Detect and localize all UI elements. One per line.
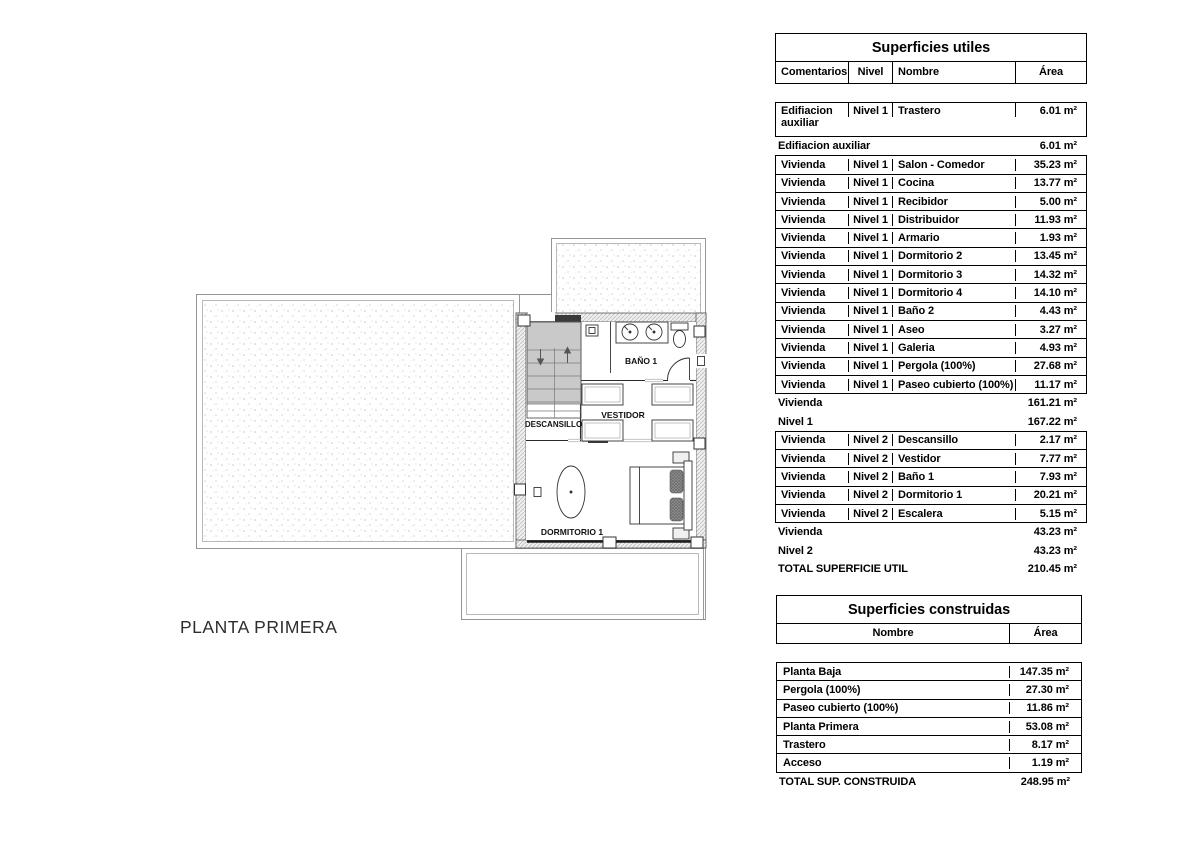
- table-cell: Trastero: [892, 103, 1015, 117]
- table-row: ViviendaNivel 1Recibidor5.00 m²: [775, 192, 1087, 211]
- table-header: Superficies utiles Comentarios Nivel Nom…: [775, 33, 1087, 84]
- table-cell: Nivel 1: [848, 177, 892, 189]
- table-cell: Dormitorio 1: [892, 489, 1015, 501]
- table-row: Planta Primera53.08 m²: [776, 717, 1082, 736]
- table-cell: Vivienda: [776, 342, 848, 354]
- table-cell: 14.10 m²: [1015, 287, 1086, 299]
- table-cell: Nivel 1: [848, 196, 892, 208]
- table-cell: 6.01 m²: [1015, 103, 1086, 117]
- table-body: Edifiacion auxiliarNivel 1Trastero6.01 m…: [775, 102, 1087, 578]
- room-label-landing: DESCANSILLO: [525, 420, 582, 429]
- table-cell: Edifiacion auxiliar: [776, 103, 848, 129]
- summary-value: 161.21 m²: [996, 397, 1087, 409]
- table-cell: Nivel 1: [848, 305, 892, 317]
- table-cell: Dormitorio 2: [892, 250, 1015, 262]
- table-cell: 1.93 m²: [1015, 232, 1086, 244]
- column-header: Área: [1015, 62, 1086, 83]
- table-title: Superficies utiles: [776, 34, 1086, 62]
- summary-row: TOTAL SUPERFICIE UTIL210.45 m²: [775, 560, 1087, 578]
- table-cell: 8.17 m²: [1009, 739, 1081, 751]
- table-cell: Vivienda: [776, 250, 848, 262]
- table-cell: Nivel 1: [848, 287, 892, 299]
- summary-label: Nivel 1: [775, 416, 813, 428]
- superficies-construidas-table: Superficies construidas Nombre Área Plan…: [776, 595, 1082, 791]
- table-cell: 4.93 m²: [1015, 342, 1086, 354]
- summary-label: Edifiacion auxiliar: [775, 140, 870, 152]
- terrace-roof-left: [197, 295, 520, 549]
- table-cell: Baño 1: [892, 471, 1015, 483]
- table-row: ViviendaNivel 1Distribuidor11.93 m²: [775, 210, 1087, 229]
- table-cell: 147.35 m²: [1009, 666, 1081, 678]
- table-cell: Galeria: [892, 342, 1015, 354]
- table-cell: Vivienda: [776, 360, 848, 372]
- table-cell: Vivienda: [776, 177, 848, 189]
- table-cell: Nivel 2: [848, 434, 892, 446]
- table-cell: Vivienda: [776, 196, 848, 208]
- table-row: Pergola (100%)27.30 m²: [776, 680, 1082, 699]
- table-cell: Vivienda: [776, 379, 848, 391]
- table-cell: Nivel 1: [848, 379, 892, 391]
- table-cell: Nivel 1: [848, 214, 892, 226]
- table-row: Paseo cubierto (100%)11.86 m²: [776, 699, 1082, 718]
- table-row: ViviendaNivel 2Vestidor7.77 m²: [775, 449, 1087, 468]
- room-label-bath: BAÑO 1: [625, 356, 657, 366]
- table-cell: 5.15 m²: [1015, 508, 1086, 520]
- table-cell: Vivienda: [776, 324, 848, 336]
- bathroom-window: [695, 354, 707, 368]
- summary-value: 210.45 m²: [996, 563, 1087, 575]
- table-cell: Pergola (100%): [777, 684, 1009, 696]
- plan-title: PLANTA PRIMERA: [180, 617, 337, 637]
- table-cell: 7.93 m²: [1015, 471, 1086, 483]
- summary-row: Nivel 1167.22 m²: [775, 412, 1087, 430]
- table-row: Trastero8.17 m²: [776, 735, 1082, 754]
- table-cell: Nivel 1: [848, 232, 892, 244]
- table-row: ViviendaNivel 1Baño 24.43 m²: [775, 302, 1087, 321]
- table-cell: Vivienda: [776, 287, 848, 299]
- floor-plan: BAÑO 1 VESTIDOR DESCANSILLO DORMITORIO 1…: [0, 0, 760, 700]
- table-cell: Nivel 2: [848, 471, 892, 483]
- summary-label: Vivienda: [775, 397, 822, 409]
- table-cell: Nivel 1: [848, 342, 892, 354]
- table-cell: 4.43 m²: [1015, 305, 1086, 317]
- table-cell: Pergola (100%): [892, 360, 1015, 372]
- table-cell: Vivienda: [776, 159, 848, 171]
- table-cell: Vestidor: [892, 453, 1015, 465]
- table-row: ViviendaNivel 2Escalera5.15 m²: [775, 504, 1087, 523]
- table-cell: Vivienda: [776, 489, 848, 501]
- summary-label: TOTAL SUP. CONSTRUIDA: [776, 776, 916, 788]
- table-row: ViviendaNivel 1Pergola (100%)27.68 m²: [775, 357, 1087, 376]
- page: BAÑO 1 VESTIDOR DESCANSILLO DORMITORIO 1…: [0, 0, 1200, 850]
- table-title: Superficies construidas: [777, 596, 1081, 624]
- terrace-roof-top: [552, 239, 706, 319]
- table-row: ViviendaNivel 2Dormitorio 120.21 m²: [775, 486, 1087, 505]
- table-cell: Aseo: [892, 324, 1015, 336]
- summary-row: Vivienda43.23 m²: [775, 523, 1087, 541]
- terrace-bottom: [462, 549, 704, 620]
- table-row: ViviendaNivel 1Armario1.93 m²: [775, 228, 1087, 247]
- table-cell: Nivel 1: [848, 103, 892, 117]
- summary-value: 43.23 m²: [996, 526, 1087, 538]
- table-cell: Vivienda: [776, 269, 848, 281]
- table-row: ViviendaNivel 1Galeria4.93 m²: [775, 338, 1087, 357]
- table-cell: 13.77 m²: [1015, 177, 1086, 189]
- summary-value: 6.01 m²: [996, 140, 1087, 152]
- superficies-utiles-table: Superficies utiles Comentarios Nivel Nom…: [775, 33, 1087, 578]
- summary-label: TOTAL SUPERFICIE UTIL: [775, 563, 908, 575]
- summary-value: 167.22 m²: [996, 416, 1087, 428]
- table-cell: Vivienda: [776, 508, 848, 520]
- table-cell: Paseo cubierto (100%): [892, 379, 1015, 391]
- table-cell: Nivel 1: [848, 360, 892, 372]
- table-cell: Cocina: [892, 177, 1015, 189]
- table-cell: Nivel 2: [848, 489, 892, 501]
- table-cell: 2.17 m²: [1015, 434, 1086, 446]
- table-cell: Paseo cubierto (100%): [777, 702, 1009, 714]
- shower-drain-icon: [586, 325, 598, 336]
- table-cell: 14.32 m²: [1015, 269, 1086, 281]
- summary-label: Nivel 2: [775, 545, 813, 557]
- table-cell: 53.08 m²: [1009, 721, 1081, 733]
- table-row: Edifiacion auxiliarNivel 1Trastero6.01 m…: [775, 102, 1087, 137]
- table-cell: Nivel 2: [848, 508, 892, 520]
- table-cell: Armario: [892, 232, 1015, 244]
- table-cell: 11.86 m²: [1009, 702, 1081, 714]
- table-header: Superficies construidas Nombre Área: [776, 595, 1082, 644]
- summary-value: 248.95 m²: [985, 776, 1082, 788]
- table-cell: Trastero: [777, 739, 1009, 751]
- table-row: ViviendaNivel 1Dormitorio 414.10 m²: [775, 283, 1087, 302]
- table-row: ViviendaNivel 1Cocina13.77 m²: [775, 174, 1087, 193]
- table-body: Planta Baja147.35 m²Pergola (100%)27.30 …: [776, 662, 1082, 791]
- room-label-dressing: VESTIDOR: [601, 410, 644, 420]
- summary-row: TOTAL SUP. CONSTRUIDA248.95 m²: [776, 773, 1082, 791]
- column-header: Nivel: [848, 62, 892, 83]
- table-cell: Escalera: [892, 508, 1015, 520]
- table-cell: 11.93 m²: [1015, 214, 1086, 226]
- column-header: Nombre: [777, 624, 1009, 643]
- summary-label: Vivienda: [775, 526, 822, 538]
- table-cell: Recibidor: [892, 196, 1015, 208]
- table-row: Acceso1.19 m²: [776, 753, 1082, 772]
- table-cell: Nivel 1: [848, 250, 892, 262]
- table-row: ViviendaNivel 1Dormitorio 314.32 m²: [775, 265, 1087, 284]
- table-cell: 13.45 m²: [1015, 250, 1086, 262]
- table-cell: Distribuidor: [892, 214, 1015, 226]
- table-row: ViviendaNivel 2Baño 17.93 m²: [775, 467, 1087, 486]
- table-cell: 11.17 m²: [1015, 379, 1086, 391]
- table-cell: 3.27 m²: [1015, 324, 1086, 336]
- summary-row: Nivel 243.23 m²: [775, 542, 1087, 560]
- table-cell: Vivienda: [776, 232, 848, 244]
- table-cell: Vivienda: [776, 305, 848, 317]
- table-row: ViviendaNivel 1Aseo3.27 m²: [775, 320, 1087, 339]
- stairs: [527, 322, 581, 418]
- table-cell: Nivel 1: [848, 269, 892, 281]
- table-cell: Acceso: [777, 757, 1009, 769]
- table-cell: Descansillo: [892, 434, 1015, 446]
- table-cell: Vivienda: [776, 434, 848, 446]
- table-cell: Baño 2: [892, 305, 1015, 317]
- table-cell: Salon - Comedor: [892, 159, 1015, 171]
- summary-value: 43.23 m²: [996, 545, 1087, 557]
- table-cell: 1.19 m²: [1009, 757, 1081, 769]
- table-cell: Vivienda: [776, 214, 848, 226]
- table-cell: 35.23 m²: [1015, 159, 1086, 171]
- table-cell: Nivel 1: [848, 324, 892, 336]
- table-row: ViviendaNivel 1Dormitorio 213.45 m²: [775, 247, 1087, 266]
- table-cell: Dormitorio 3: [892, 269, 1015, 281]
- table-row: Planta Baja147.35 m²: [776, 662, 1082, 681]
- table-cell: Dormitorio 4: [892, 287, 1015, 299]
- double-sink-icon: [616, 322, 668, 343]
- table-row: ViviendaNivel 2Descansillo2.17 m²: [775, 431, 1087, 450]
- table-cell: 27.30 m²: [1009, 684, 1081, 696]
- table-cell: 5.00 m²: [1015, 196, 1086, 208]
- table-row: ViviendaNivel 1Paseo cubierto (100%)11.1…: [775, 375, 1087, 394]
- column-header: Área: [1009, 624, 1081, 643]
- table-row: ViviendaNivel 1Salon - Comedor35.23 m²: [775, 155, 1087, 174]
- table-cell: Planta Primera: [777, 721, 1009, 733]
- table-cell: Planta Baja: [777, 666, 1009, 678]
- table-cell: 7.77 m²: [1015, 453, 1086, 465]
- table-cell: Vivienda: [776, 471, 848, 483]
- room-label-bedroom: DORMITORIO 1: [541, 527, 603, 537]
- table-cell: Nivel 1: [848, 159, 892, 171]
- summary-row: Vivienda161.21 m²: [775, 394, 1087, 412]
- table-cell: 27.68 m²: [1015, 360, 1086, 372]
- column-header: Comentarios: [776, 62, 848, 83]
- summary-row: Edifiacion auxiliar6.01 m²: [775, 137, 1087, 155]
- table-cell: Vivienda: [776, 453, 848, 465]
- table-cell: Nivel 2: [848, 453, 892, 465]
- table-cell: 20.21 m²: [1015, 489, 1086, 501]
- column-header: Nombre: [892, 62, 1015, 83]
